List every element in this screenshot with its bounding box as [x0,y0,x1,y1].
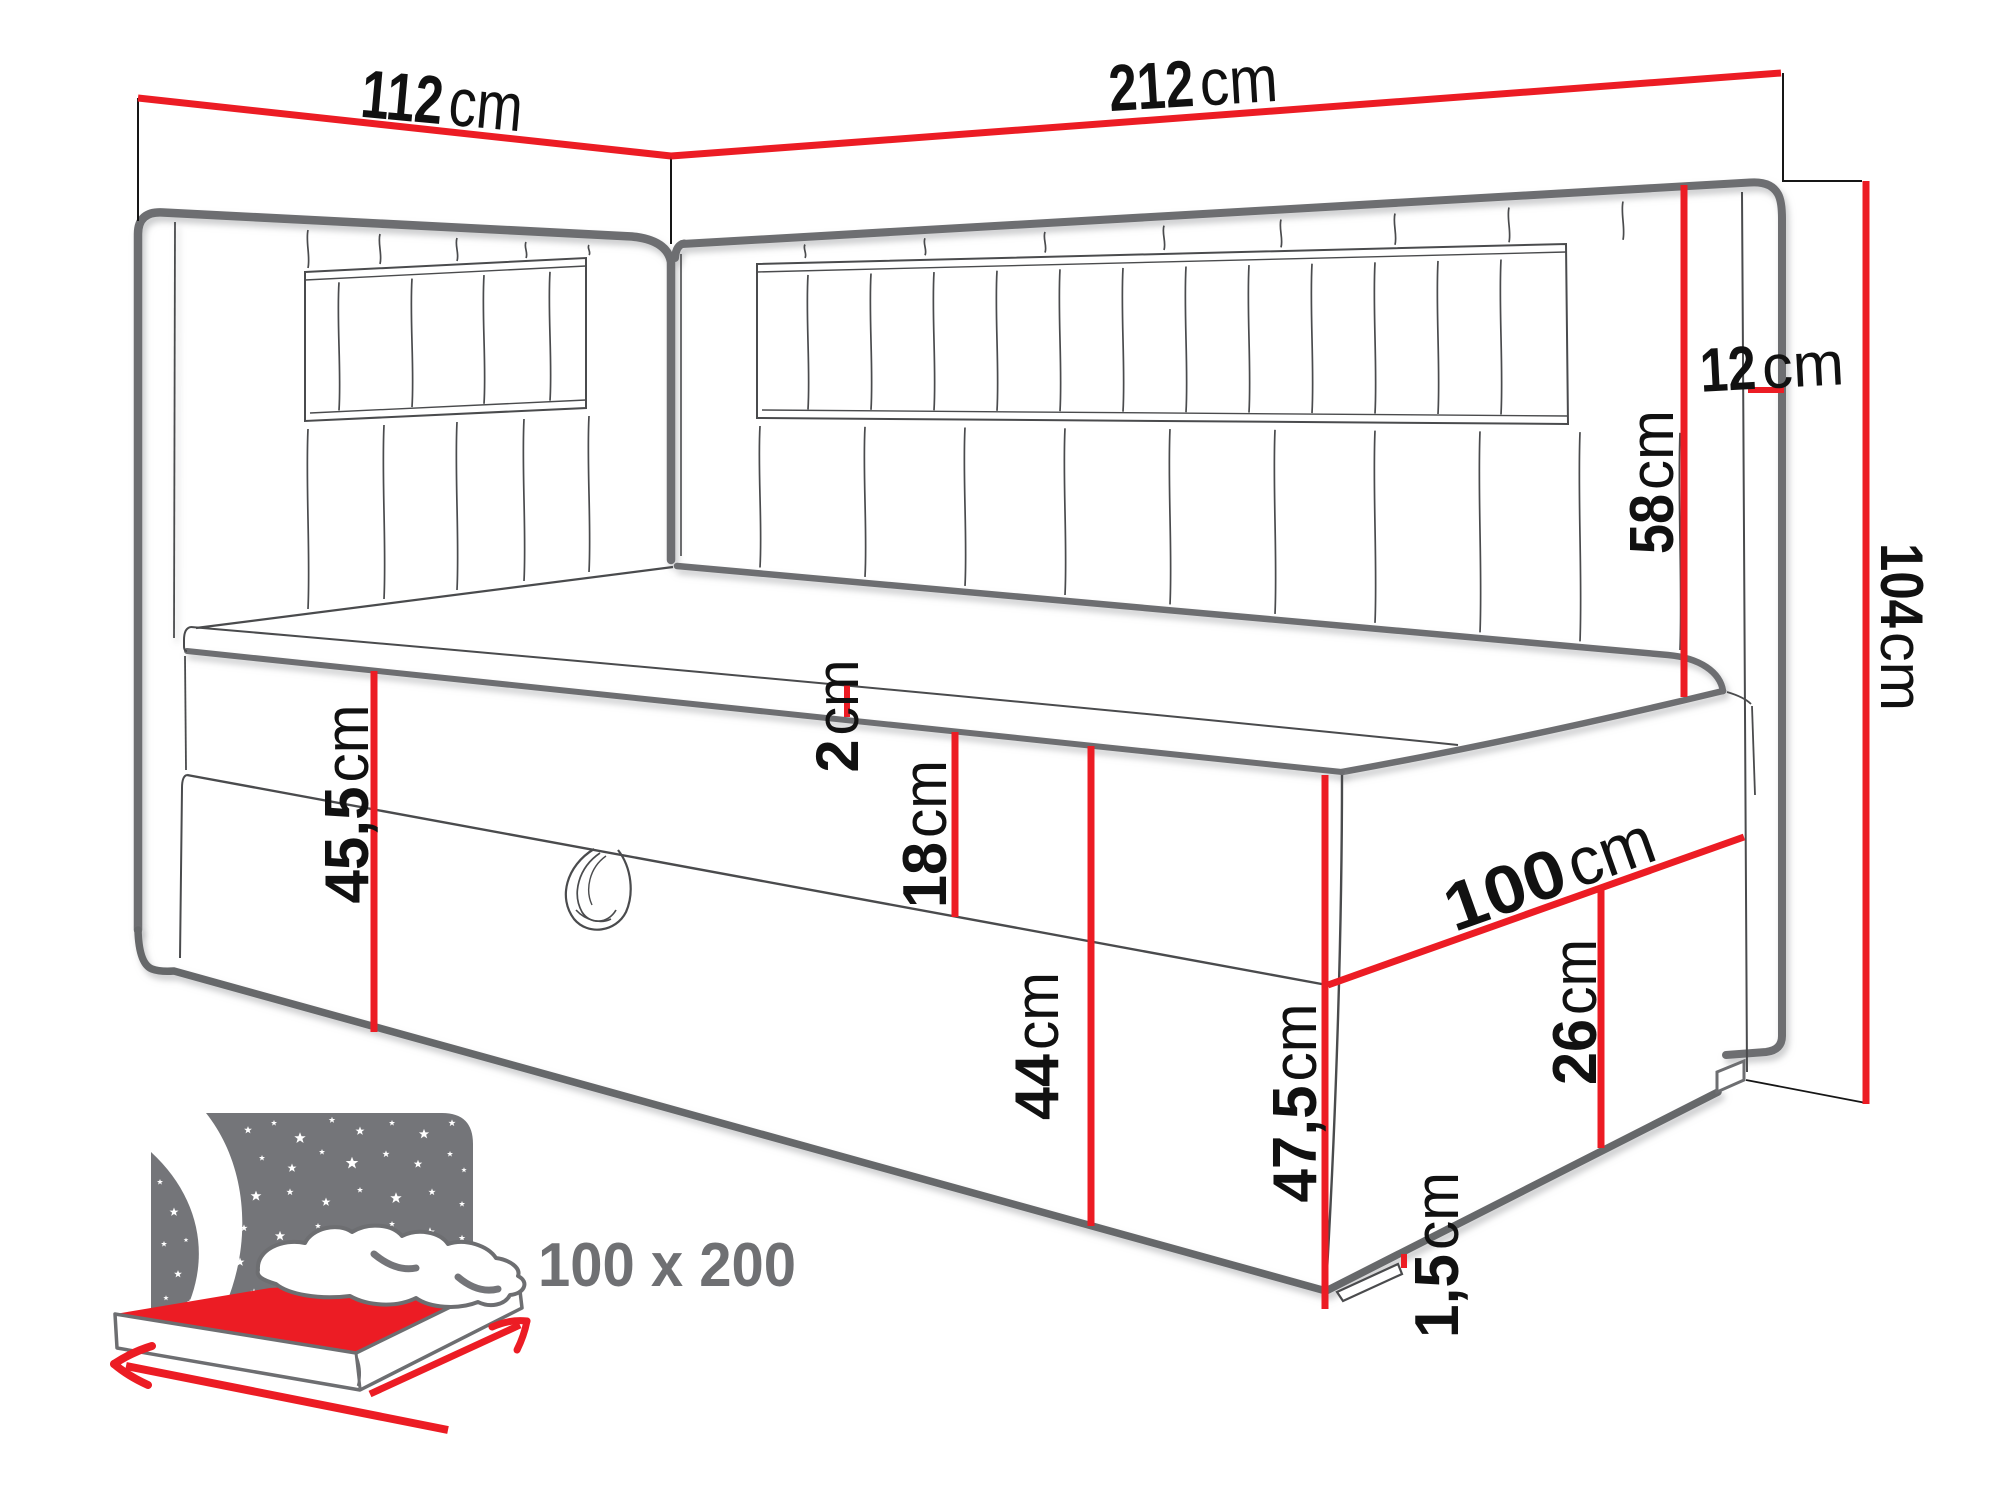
svg-text:cm: cm [446,64,527,146]
svg-text:cm: cm [891,760,960,838]
svg-text:cm: cm [1261,1004,1330,1082]
svg-text:45,5: 45,5 [313,787,382,904]
svg-text:44: 44 [1003,1054,1072,1120]
svg-text:cm: cm [804,660,871,736]
svg-text:212: 212 [1106,46,1195,125]
svg-text:47,5: 47,5 [1261,1086,1330,1203]
svg-text:cm: cm [1403,1172,1472,1250]
svg-text:cm: cm [1541,939,1610,1015]
svg-text:112: 112 [358,56,447,139]
svg-text:104: 104 [1868,543,1935,629]
svg-text:12: 12 [1698,334,1758,406]
svg-text:cm: cm [313,705,382,783]
svg-text:cm: cm [1003,972,1072,1050]
svg-text:18: 18 [891,842,960,908]
svg-text:2: 2 [804,740,871,773]
svg-text:cm: cm [1760,329,1845,402]
svg-text:cm: cm [1618,410,1687,490]
svg-text:58: 58 [1618,494,1687,554]
svg-text:cm: cm [1868,632,1935,711]
svg-text:1,5: 1,5 [1403,1254,1472,1338]
svg-text:cm: cm [1197,41,1279,120]
svg-text:100 x 200: 100 x 200 [538,1231,796,1300]
svg-text:26: 26 [1541,1019,1610,1085]
